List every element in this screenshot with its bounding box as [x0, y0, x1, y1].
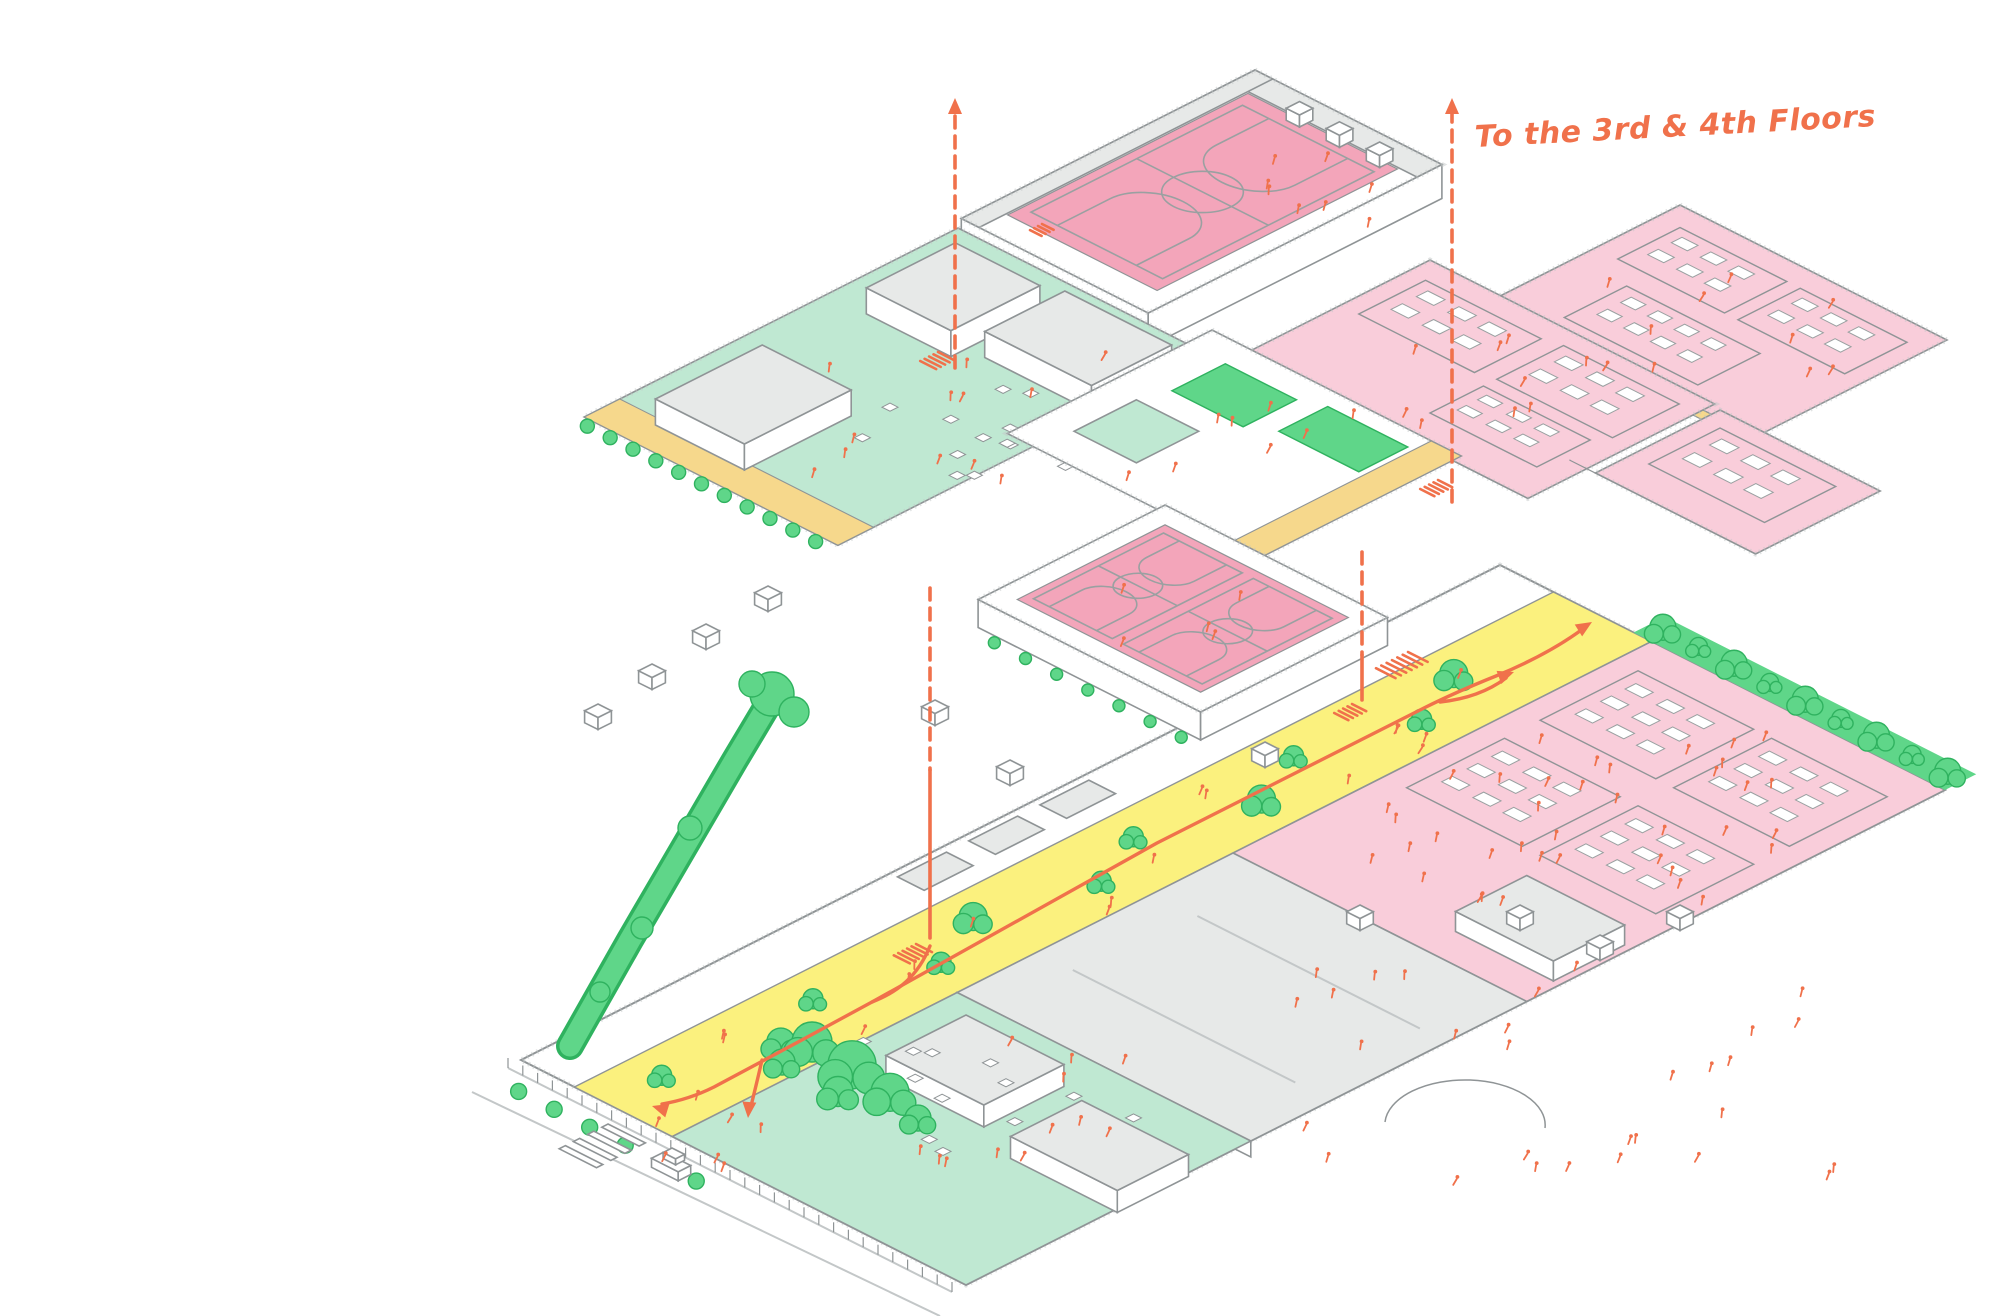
bush-icon — [511, 1083, 527, 1099]
play-arc — [1385, 1080, 1545, 1128]
bush-icon — [809, 535, 823, 549]
bush-icon — [1144, 716, 1156, 728]
bush-icon — [1082, 684, 1094, 696]
bush-icon — [580, 419, 594, 433]
bush-icon — [688, 1173, 704, 1189]
bush-icon — [740, 500, 754, 514]
tree-icon — [1644, 614, 1680, 643]
vent-cube — [639, 664, 666, 690]
arrowhead-icon — [948, 98, 962, 114]
bush-icon — [763, 511, 777, 525]
campus-axonometric-diagram — [0, 0, 2000, 1316]
bush-icon — [988, 637, 1000, 649]
bush-icon — [546, 1101, 562, 1117]
bush-icon — [649, 454, 663, 468]
vent-cube — [585, 704, 612, 730]
vent-cube — [922, 700, 949, 726]
bush-icon — [779, 697, 809, 727]
campus-axonometric-page: { "annotation": { "to_floors": "To the 3… — [0, 0, 2000, 1316]
vent-cube — [693, 624, 720, 650]
arrowhead-icon — [1445, 98, 1459, 114]
bush-icon — [1051, 668, 1063, 680]
bush-icon — [672, 465, 686, 479]
bush-icon — [694, 477, 708, 491]
bush-icon — [1020, 653, 1032, 665]
bush-icon — [678, 816, 702, 840]
bush-icon — [603, 431, 617, 445]
bush-icon — [1113, 700, 1125, 712]
bush-icon — [626, 442, 640, 456]
bush-icon — [1175, 731, 1187, 743]
bush-icon — [717, 488, 731, 502]
bush-icon — [786, 523, 800, 537]
vent-cube — [997, 760, 1024, 786]
bush-icon — [590, 982, 610, 1002]
stairs-icon — [1420, 480, 1452, 496]
vent-cube — [755, 586, 782, 612]
bush-icon — [739, 671, 765, 697]
bush-icon — [631, 917, 653, 939]
